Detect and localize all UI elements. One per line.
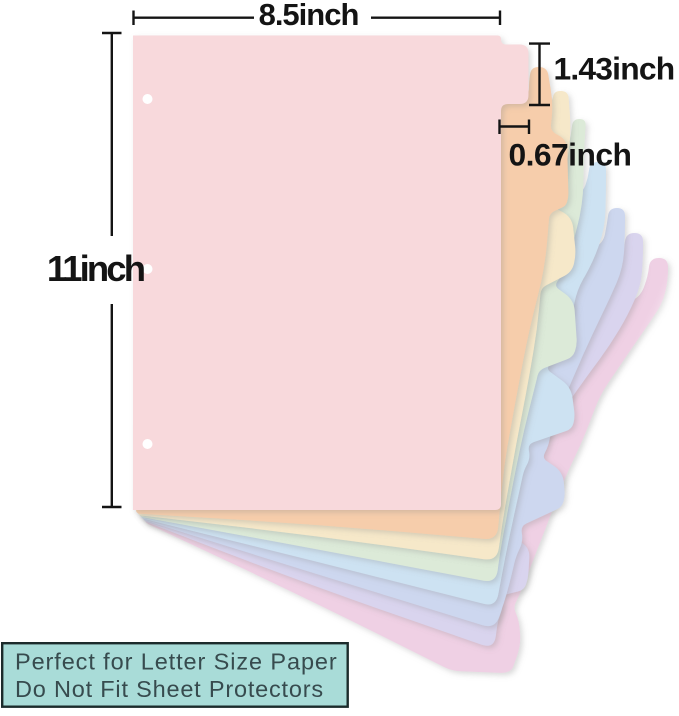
svg-text:1.43inch: 1.43inch [554, 50, 675, 86]
svg-text:0.67inch: 0.67inch [509, 137, 632, 173]
svg-text:8.5inch: 8.5inch [259, 0, 359, 32]
svg-text:Do Not Fit Sheet Protectors: Do Not Fit Sheet Protectors [15, 676, 324, 702]
svg-text:11inch: 11inch [47, 248, 145, 289]
svg-text:Perfect for Letter Size Paper: Perfect for Letter Size Paper [15, 649, 338, 675]
